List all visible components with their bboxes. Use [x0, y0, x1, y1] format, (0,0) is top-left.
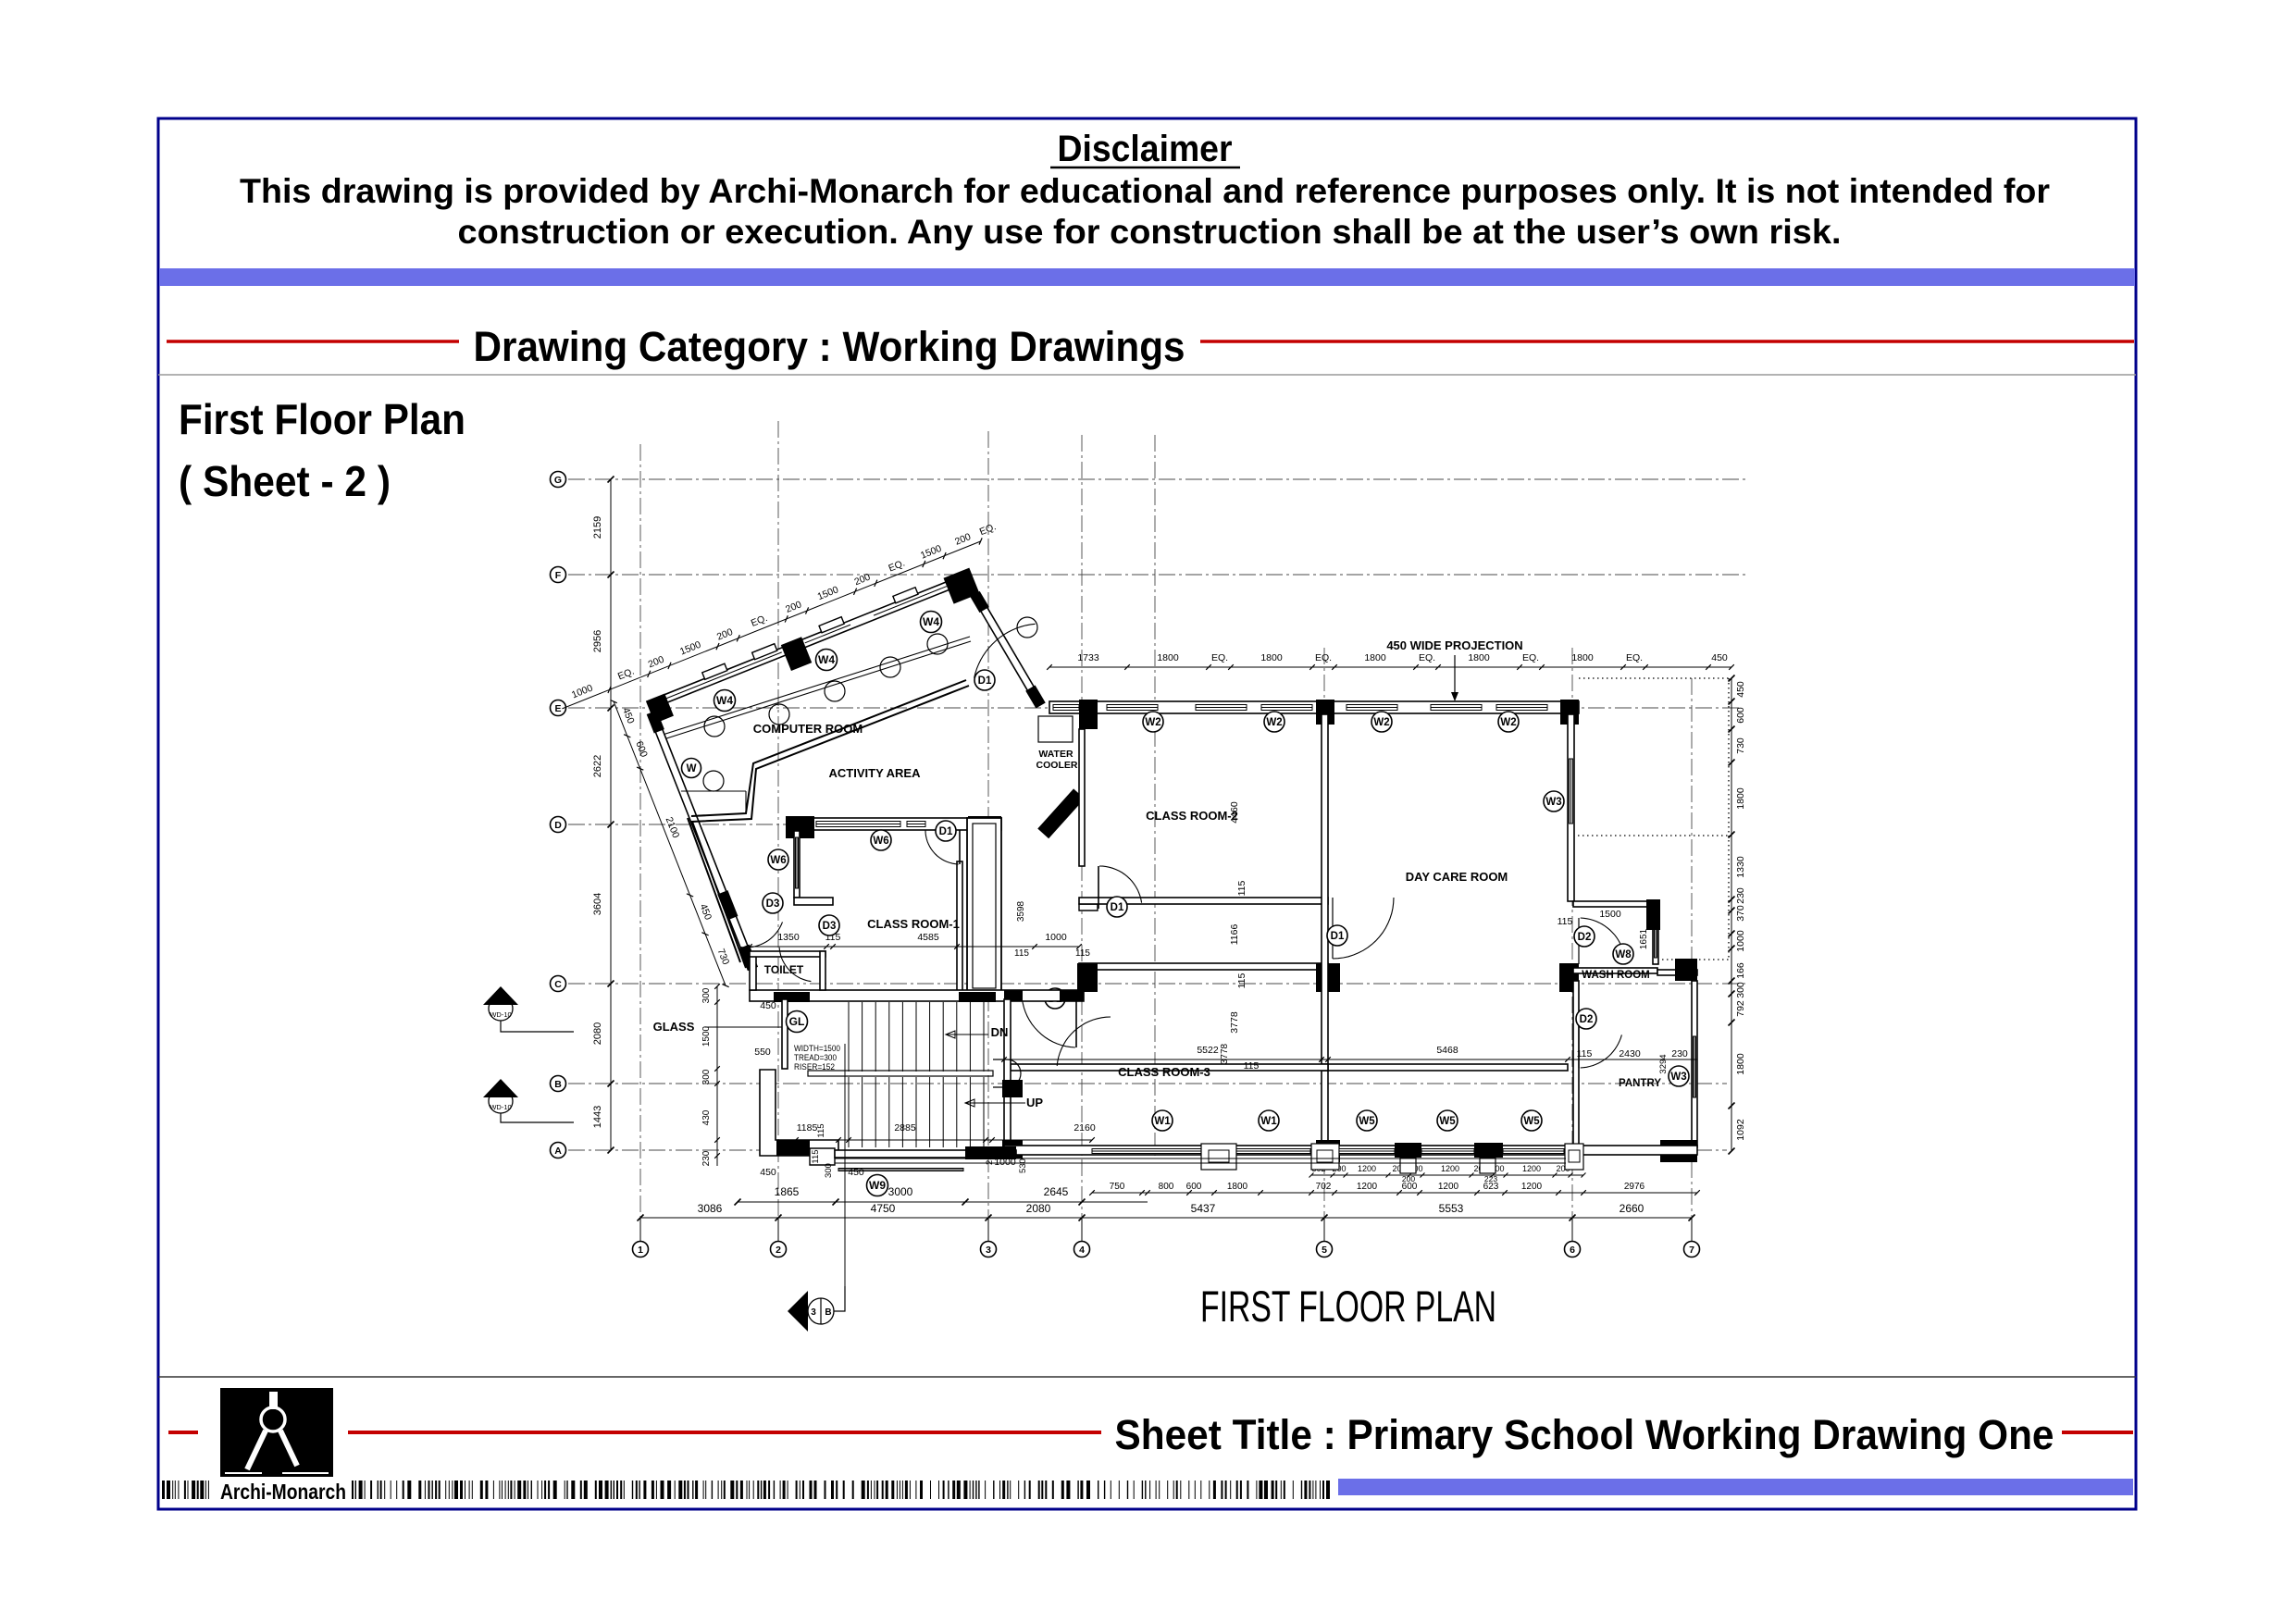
- svg-text:115: 115: [1558, 916, 1573, 927]
- svg-text:D3: D3: [766, 898, 780, 910]
- svg-text:3294: 3294: [1658, 1054, 1669, 1073]
- svg-text:( Sheet - 2 ): ( Sheet - 2 ): [179, 457, 391, 505]
- svg-text:1350: 1350: [777, 932, 800, 943]
- svg-text:1185: 1185: [797, 1122, 818, 1134]
- svg-text:D: D: [554, 820, 562, 831]
- svg-text:1200: 1200: [1438, 1182, 1459, 1192]
- svg-text:450: 450: [760, 1167, 776, 1178]
- svg-text:1651: 1651: [1639, 928, 1649, 949]
- svg-text:EQ.: EQ.: [1315, 652, 1332, 663]
- svg-text:230: 230: [1735, 887, 1746, 904]
- svg-text:2430: 2430: [1619, 1048, 1641, 1059]
- svg-text:230: 230: [1671, 1048, 1688, 1059]
- svg-text:2080: 2080: [592, 1022, 603, 1045]
- svg-text:3086: 3086: [698, 1202, 723, 1215]
- svg-text:1500: 1500: [701, 1025, 712, 1047]
- svg-text:W6: W6: [770, 855, 786, 866]
- svg-text:E: E: [554, 703, 561, 714]
- svg-text:D1: D1: [978, 675, 992, 687]
- svg-text:1200: 1200: [1522, 1164, 1541, 1173]
- svg-text:W2: W2: [1373, 717, 1389, 728]
- svg-text:COMPUTER ROOM: COMPUTER ROOM: [753, 722, 863, 736]
- svg-text:1800: 1800: [1468, 652, 1490, 663]
- svg-text:EQ.: EQ.: [1626, 652, 1643, 663]
- svg-text:3778: 3778: [1220, 1043, 1230, 1064]
- svg-text:W4: W4: [716, 694, 733, 707]
- svg-text:530: 530: [1018, 1158, 1028, 1173]
- svg-text:2: 2: [776, 1245, 781, 1256]
- svg-text:1800: 1800: [1735, 1053, 1746, 1075]
- svg-text:W5: W5: [1523, 1116, 1540, 1127]
- svg-text:1733: 1733: [1077, 652, 1099, 663]
- svg-text:2976: 2976: [1624, 1182, 1645, 1192]
- svg-text:115: 115: [1244, 1060, 1260, 1072]
- svg-text:W2: W2: [1266, 717, 1282, 728]
- svg-text:D2: D2: [1580, 1014, 1594, 1025]
- svg-text:WIDTH=1500: WIDTH=1500: [794, 1044, 840, 1053]
- svg-text:W4: W4: [923, 615, 939, 628]
- svg-text:550: 550: [754, 1047, 771, 1058]
- svg-text:TREAD=300: TREAD=300: [794, 1053, 837, 1062]
- svg-text:1200: 1200: [1521, 1182, 1543, 1192]
- svg-text:2645: 2645: [1044, 1185, 1069, 1198]
- svg-text:223: 223: [1484, 1174, 1497, 1183]
- svg-text:115: 115: [1014, 948, 1029, 959]
- svg-text:D1: D1: [939, 826, 953, 837]
- svg-text:2885: 2885: [894, 1122, 916, 1134]
- svg-text:D1: D1: [1331, 931, 1345, 942]
- svg-text:1000: 1000: [994, 1157, 1016, 1168]
- svg-text:WD-10: WD-10: [490, 1103, 511, 1111]
- svg-text:730: 730: [1735, 737, 1746, 754]
- svg-text:1000: 1000: [1735, 930, 1746, 952]
- svg-text:3778: 3778: [1229, 1011, 1240, 1034]
- svg-text:1330: 1330: [1735, 856, 1746, 878]
- svg-text:792: 792: [1735, 1000, 1746, 1017]
- svg-text:2159: 2159: [592, 516, 603, 539]
- svg-text:750: 750: [1110, 1182, 1125, 1192]
- svg-text:2160: 2160: [1074, 1122, 1096, 1134]
- svg-text:1800: 1800: [1157, 652, 1179, 663]
- svg-text:First Floor Plan: First Floor Plan: [179, 395, 465, 443]
- svg-text:DN: DN: [991, 1025, 1009, 1039]
- svg-text:1800: 1800: [1735, 787, 1746, 810]
- svg-text:W1: W1: [1154, 1116, 1171, 1127]
- svg-text:EQ.: EQ.: [1419, 652, 1435, 663]
- svg-text:W5: W5: [1359, 1116, 1375, 1127]
- svg-text:450 WIDE PROJECTION: 450 WIDE PROJECTION: [1386, 638, 1522, 652]
- svg-text:CLASS ROOM-3: CLASS ROOM-3: [1118, 1065, 1210, 1079]
- svg-text:FIRST FLOOR PLAN: FIRST FLOOR PLAN: [1200, 1282, 1496, 1331]
- svg-text:1443: 1443: [592, 1106, 603, 1128]
- svg-text:3: 3: [986, 1245, 991, 1256]
- svg-text:800: 800: [1159, 1182, 1174, 1192]
- svg-text:2956: 2956: [592, 630, 603, 652]
- svg-text:UP: UP: [1026, 1096, 1043, 1109]
- svg-text:This drawing is provided by Ar: This drawing is provided by Archi-Monarc…: [240, 172, 2050, 210]
- svg-text:1800: 1800: [1364, 652, 1386, 663]
- svg-text:1800: 1800: [1571, 652, 1594, 663]
- svg-text:3: 3: [811, 1307, 816, 1318]
- svg-text:5553: 5553: [1439, 1202, 1464, 1215]
- svg-text:115: 115: [811, 1149, 821, 1163]
- svg-text:5468: 5468: [1436, 1045, 1458, 1056]
- svg-text:WD-10: WD-10: [490, 1010, 511, 1019]
- svg-text:W4: W4: [818, 653, 835, 666]
- svg-text:CLASS ROOM-1: CLASS ROOM-1: [867, 917, 960, 931]
- svg-text:5522: 5522: [1197, 1045, 1219, 1056]
- svg-text:166: 166: [1735, 962, 1746, 979]
- svg-text:5437: 5437: [1191, 1202, 1216, 1215]
- svg-text:W9: W9: [869, 1179, 886, 1192]
- svg-text:WATER: WATER: [1038, 749, 1074, 760]
- svg-text:450: 450: [1735, 681, 1746, 698]
- svg-text:W8: W8: [1615, 949, 1632, 960]
- svg-text:4585: 4585: [917, 932, 939, 943]
- svg-text:C: C: [554, 979, 562, 990]
- svg-text:1200: 1200: [1357, 1182, 1378, 1192]
- svg-text:W1: W1: [1260, 1116, 1277, 1127]
- svg-text:600: 600: [1735, 707, 1746, 724]
- svg-text:2: 2: [498, 997, 503, 1008]
- svg-text:W2: W2: [1500, 717, 1516, 728]
- svg-text:A: A: [554, 1146, 562, 1157]
- svg-text:115: 115: [816, 1123, 826, 1137]
- svg-text:Drawing Category : Working Dra: Drawing Category : Working Drawings: [474, 323, 1185, 370]
- svg-text:GL: GL: [789, 1015, 805, 1028]
- svg-text:1500: 1500: [1599, 909, 1621, 920]
- svg-text:6: 6: [1570, 1245, 1575, 1256]
- svg-text:1: 1: [498, 1089, 503, 1100]
- svg-text:D2: D2: [1578, 932, 1592, 943]
- svg-text:PANTRY: PANTRY: [1619, 1078, 1661, 1089]
- svg-text:300: 300: [1735, 982, 1746, 998]
- svg-text:3604: 3604: [592, 893, 603, 915]
- svg-text:B: B: [554, 1079, 562, 1090]
- svg-text:G: G: [554, 475, 562, 486]
- svg-text:1000: 1000: [1045, 932, 1067, 943]
- svg-text:1200: 1200: [1358, 1164, 1376, 1173]
- svg-text:200: 200: [1402, 1174, 1415, 1183]
- svg-text:RISER=152: RISER=152: [794, 1062, 835, 1072]
- svg-text:D3: D3: [823, 921, 837, 932]
- svg-text:4750: 4750: [871, 1202, 896, 1215]
- svg-text:300: 300: [701, 1069, 712, 1084]
- svg-text:WASH ROOM: WASH ROOM: [1582, 970, 1649, 981]
- svg-text:W2: W2: [1145, 717, 1160, 728]
- svg-text:W5: W5: [1439, 1116, 1456, 1127]
- svg-text:1800: 1800: [1260, 652, 1283, 663]
- svg-text:300: 300: [824, 1163, 834, 1178]
- svg-text:W3: W3: [1670, 1072, 1686, 1083]
- svg-text:1200: 1200: [1441, 1164, 1459, 1173]
- svg-text:TOILET: TOILET: [764, 963, 804, 976]
- svg-text:1092: 1092: [1735, 1119, 1746, 1141]
- svg-text:115: 115: [1236, 973, 1247, 988]
- svg-text:D1: D1: [1111, 902, 1124, 913]
- svg-text:construction or execution. Any: construction or execution. Any use for c…: [458, 213, 1842, 251]
- svg-text:ACTIVITY AREA: ACTIVITY AREA: [829, 766, 922, 780]
- svg-text:1: 1: [638, 1245, 643, 1256]
- svg-text:450: 450: [848, 1167, 864, 1178]
- svg-text:2660: 2660: [1620, 1202, 1644, 1215]
- svg-text:Disclaimer: Disclaimer: [1058, 129, 1233, 169]
- svg-text:DAY CARE ROOM: DAY CARE ROOM: [1406, 870, 1508, 884]
- svg-text:450: 450: [760, 1000, 776, 1011]
- svg-text:600: 600: [1186, 1182, 1202, 1192]
- svg-text:370: 370: [1735, 905, 1746, 922]
- svg-text:1865: 1865: [775, 1185, 800, 1198]
- svg-text:EQ.: EQ.: [1522, 652, 1539, 663]
- svg-text:230: 230: [701, 1150, 712, 1166]
- svg-text:450: 450: [1711, 652, 1728, 663]
- svg-text:2622: 2622: [592, 755, 603, 777]
- svg-text:EQ.: EQ.: [1211, 652, 1228, 663]
- svg-text:W: W: [687, 763, 697, 774]
- svg-text:4: 4: [1079, 1245, 1085, 1256]
- svg-text:Sheet Title : Primary School W: Sheet Title : Primary School Working Dra…: [1115, 1411, 2054, 1458]
- svg-text:GLASS: GLASS: [653, 1020, 695, 1034]
- svg-text:4460: 4460: [1229, 801, 1240, 824]
- svg-text:1800: 1800: [1227, 1182, 1248, 1192]
- svg-text:W3: W3: [1545, 797, 1561, 808]
- svg-text:300: 300: [701, 987, 712, 1003]
- svg-text:5: 5: [1322, 1245, 1327, 1256]
- svg-text:115: 115: [1577, 1048, 1593, 1059]
- svg-text:7: 7: [1689, 1245, 1694, 1256]
- svg-text:230: 230: [985, 1150, 995, 1165]
- svg-text:702: 702: [1316, 1182, 1332, 1192]
- svg-text:W6: W6: [873, 836, 888, 847]
- svg-text:1166: 1166: [1229, 924, 1240, 946]
- svg-text:2080: 2080: [1026, 1202, 1051, 1215]
- svg-text:3000: 3000: [888, 1185, 913, 1198]
- svg-text:115: 115: [1075, 948, 1090, 959]
- svg-text:3598: 3598: [1016, 900, 1026, 922]
- svg-text:COOLER: COOLER: [1036, 760, 1078, 771]
- svg-text:Archi-Monarch: Archi-Monarch: [220, 1480, 346, 1504]
- svg-text:B: B: [825, 1307, 831, 1318]
- svg-text:430: 430: [701, 1109, 712, 1125]
- svg-text:115: 115: [1236, 880, 1247, 896]
- svg-text:F: F: [555, 570, 562, 581]
- svg-text:CLASS ROOM-2: CLASS ROOM-2: [1146, 809, 1238, 823]
